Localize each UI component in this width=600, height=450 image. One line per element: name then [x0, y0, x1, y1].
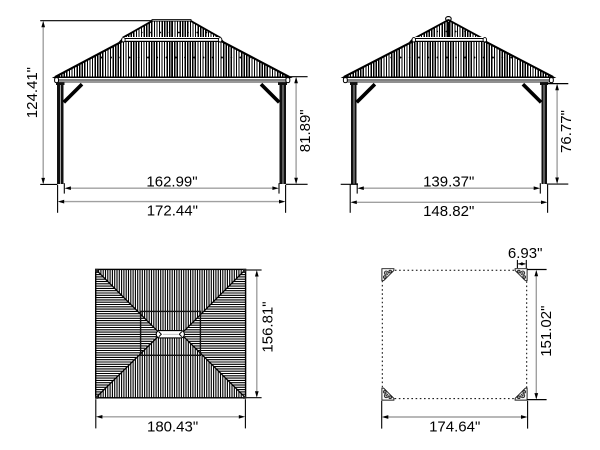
svg-text:139.37": 139.37"	[423, 173, 474, 190]
svg-text:76.77": 76.77"	[558, 110, 575, 153]
svg-text:81.89": 81.89"	[297, 109, 314, 152]
svg-text:180.43": 180.43"	[147, 419, 198, 436]
svg-text:172.44": 172.44"	[147, 203, 198, 220]
svg-text:162.99": 162.99"	[146, 173, 197, 190]
svg-text:6.93": 6.93"	[508, 245, 543, 262]
svg-text:156.81": 156.81"	[259, 301, 276, 352]
svg-text:124.41": 124.41"	[24, 67, 41, 118]
svg-text:174.64": 174.64"	[429, 418, 480, 435]
svg-text:151.02": 151.02"	[538, 306, 555, 357]
svg-text:148.82": 148.82"	[423, 203, 474, 220]
